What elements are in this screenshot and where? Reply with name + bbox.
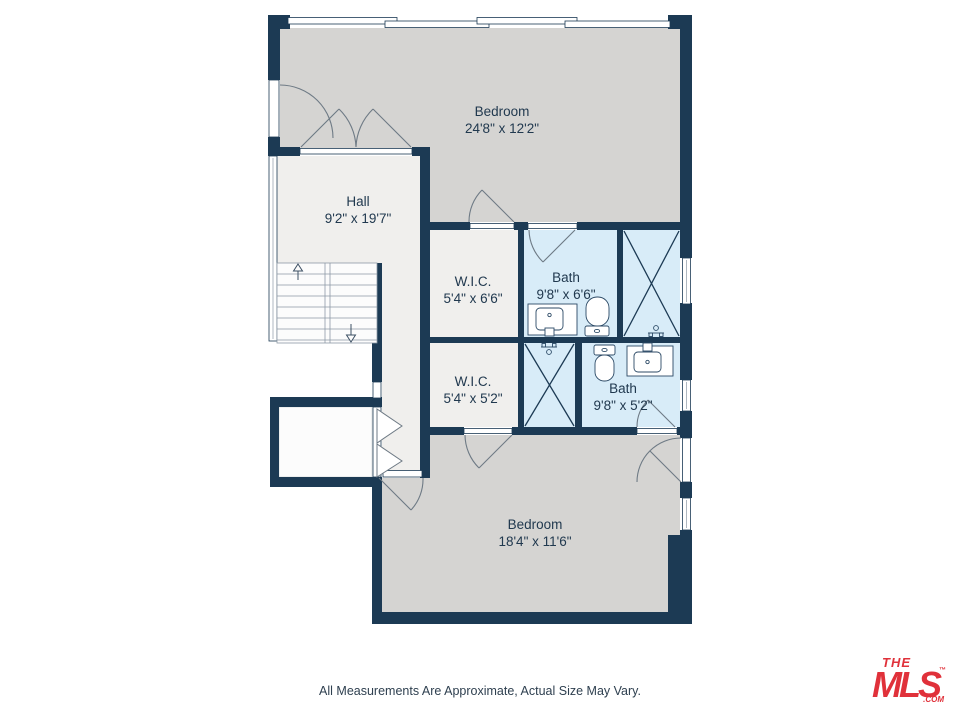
wall bbox=[372, 397, 382, 407]
door-threshold bbox=[528, 224, 577, 229]
room-dims-bedroom-upper: 24'8" x 12'2" bbox=[465, 121, 539, 136]
disclaimer-text: All Measurements Are Approximate, Actual… bbox=[0, 684, 960, 698]
wall bbox=[372, 477, 382, 624]
window bbox=[373, 382, 381, 398]
door-opening bbox=[683, 438, 691, 482]
the-mls-logo: THE MLS™ .COM bbox=[872, 656, 944, 704]
room-label-wic-lower: W.I.C. bbox=[455, 374, 492, 389]
wall bbox=[422, 337, 692, 343]
wall bbox=[680, 15, 692, 258]
wall bbox=[270, 397, 279, 487]
wall bbox=[617, 230, 623, 337]
room-dims-wic-lower: 5'4" x 5'2" bbox=[443, 391, 502, 406]
wall bbox=[677, 427, 692, 435]
room-label-bath-upper: Bath bbox=[552, 270, 580, 285]
wall bbox=[422, 427, 464, 435]
room-dims-wic-upper: 5'4" x 6'6" bbox=[443, 291, 502, 306]
room-bedroom-upper-lower-part bbox=[430, 146, 680, 222]
window bbox=[385, 21, 489, 28]
room-label-bedroom-upper: Bedroom bbox=[475, 104, 530, 119]
door-threshold bbox=[637, 429, 677, 434]
wall bbox=[377, 263, 382, 343]
wall bbox=[577, 222, 692, 230]
room-label-bedroom-lower: Bedroom bbox=[508, 517, 563, 532]
room-bedroom-lower-left-part bbox=[382, 478, 430, 612]
door-threshold bbox=[300, 149, 412, 155]
wall bbox=[575, 343, 582, 427]
wall bbox=[372, 612, 692, 624]
room-dims-hall: 9'2" x 19'7" bbox=[325, 211, 392, 226]
wall bbox=[518, 343, 524, 427]
room-label-wic-upper: W.I.C. bbox=[455, 274, 492, 289]
wall bbox=[422, 222, 470, 230]
door-threshold bbox=[464, 429, 512, 434]
room-dims-bath-lower: 9'8" x 5'2" bbox=[593, 398, 652, 413]
floor-plan: Bedroom 24'8" x 12'2" Hall 9'2" x 19'7" … bbox=[0, 0, 960, 720]
sink-vanity-icon bbox=[627, 343, 673, 376]
wall bbox=[270, 477, 382, 487]
room-closet bbox=[279, 407, 372, 477]
wall bbox=[518, 230, 524, 337]
toilet-icon bbox=[585, 297, 609, 336]
floor-plan-page: Bedroom 24'8" x 12'2" Hall 9'2" x 19'7" … bbox=[0, 0, 960, 720]
room-label-hall: Hall bbox=[346, 194, 369, 209]
wall bbox=[270, 397, 372, 407]
sink-vanity-icon bbox=[528, 304, 577, 336]
wall bbox=[512, 427, 637, 435]
trademark-symbol: ™ bbox=[939, 667, 946, 674]
wall bbox=[514, 222, 528, 230]
wall bbox=[680, 482, 692, 498]
room-dims-bedroom-lower: 18'4" x 11'6" bbox=[498, 534, 571, 549]
door-opening bbox=[269, 80, 279, 137]
wall bbox=[668, 535, 692, 624]
toilet-icon bbox=[594, 345, 615, 381]
window bbox=[288, 18, 397, 25]
room-dims-bath-upper: 9'8" x 6'6" bbox=[536, 287, 595, 302]
window bbox=[565, 21, 670, 28]
wall bbox=[372, 343, 382, 382]
door-threshold bbox=[470, 224, 514, 229]
wall bbox=[268, 15, 280, 80]
door-threshold bbox=[383, 471, 422, 478]
room-label-bath-lower: Bath bbox=[609, 381, 637, 396]
stairs bbox=[277, 263, 377, 343]
window bbox=[477, 18, 577, 25]
wall bbox=[268, 147, 300, 156]
